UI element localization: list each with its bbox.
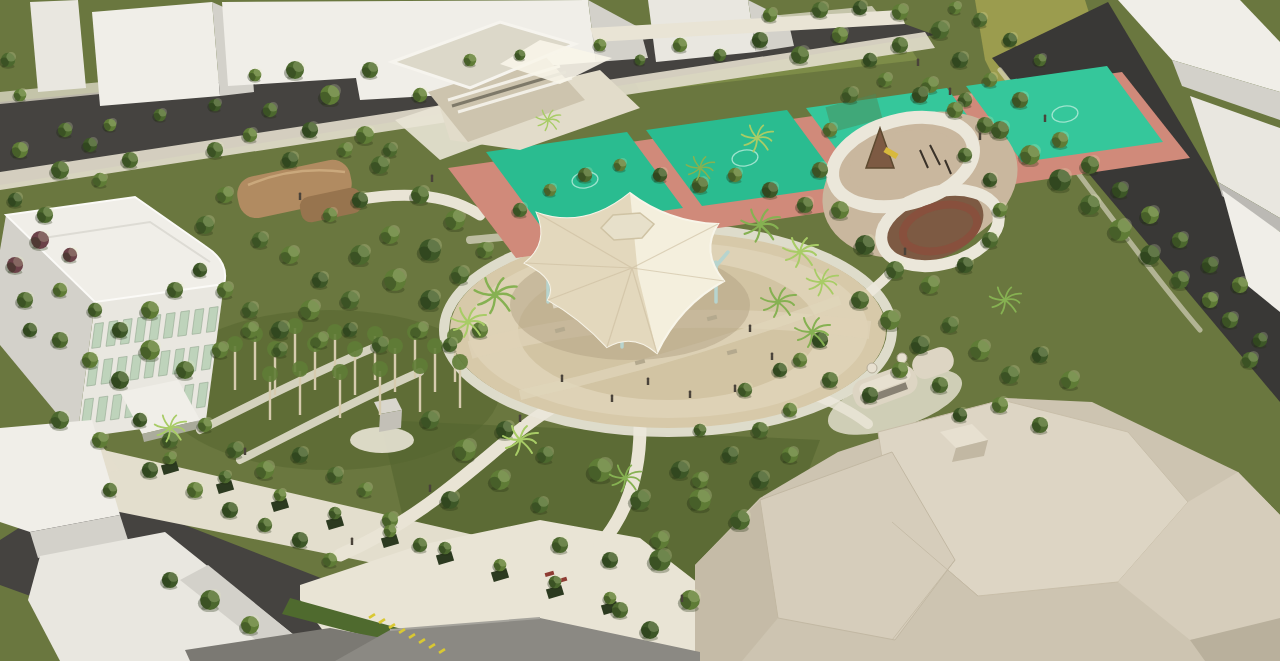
person (1044, 115, 1047, 122)
person (689, 391, 692, 398)
roof-vent (867, 363, 877, 373)
person (611, 395, 614, 402)
person (749, 325, 752, 332)
person (299, 193, 302, 200)
person (647, 378, 650, 385)
person (681, 595, 684, 602)
person (949, 88, 952, 95)
person (904, 248, 907, 255)
person (244, 448, 247, 455)
person (351, 538, 354, 545)
person (771, 353, 774, 360)
person (429, 485, 432, 492)
person (979, 133, 982, 140)
person (519, 415, 522, 422)
person (734, 385, 737, 392)
park-rendering (0, 0, 1280, 661)
rendering-canvas (0, 0, 1280, 661)
person (917, 59, 920, 66)
person (431, 175, 434, 182)
person (561, 375, 564, 382)
